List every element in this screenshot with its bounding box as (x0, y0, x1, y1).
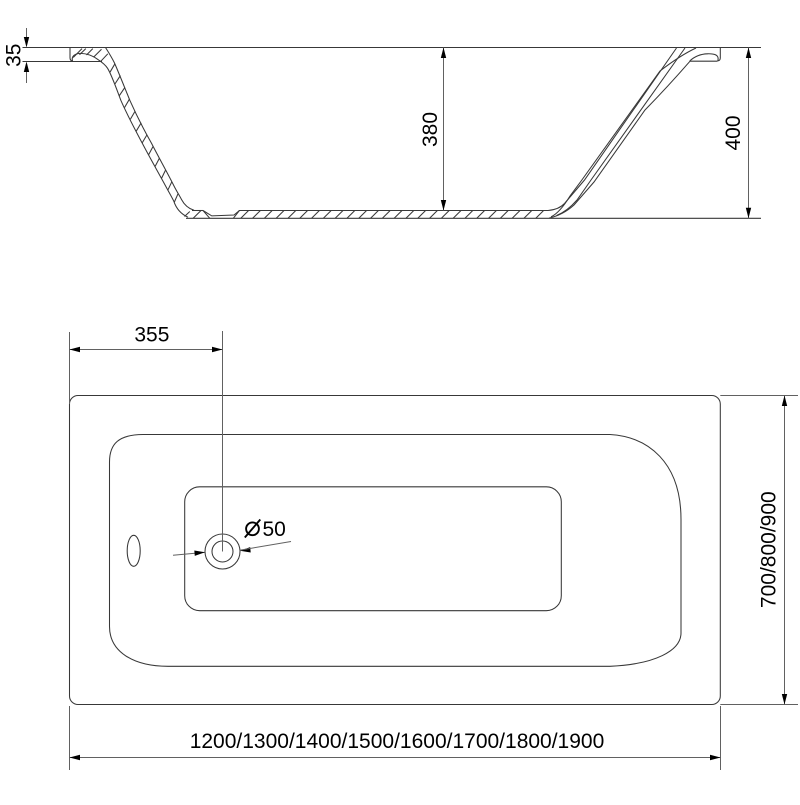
svg-text:380: 380 (419, 112, 442, 147)
svg-text:355: 355 (134, 324, 169, 347)
svg-text:50: 50 (263, 518, 286, 541)
svg-text:35: 35 (3, 44, 26, 67)
svg-text:400: 400 (722, 115, 745, 150)
svg-text:700/800/900: 700/800/900 (757, 491, 780, 608)
svg-text:1200/1300/1400/1500/1600/1700/: 1200/1300/1400/1500/1600/1700/1800/1900 (190, 730, 605, 753)
